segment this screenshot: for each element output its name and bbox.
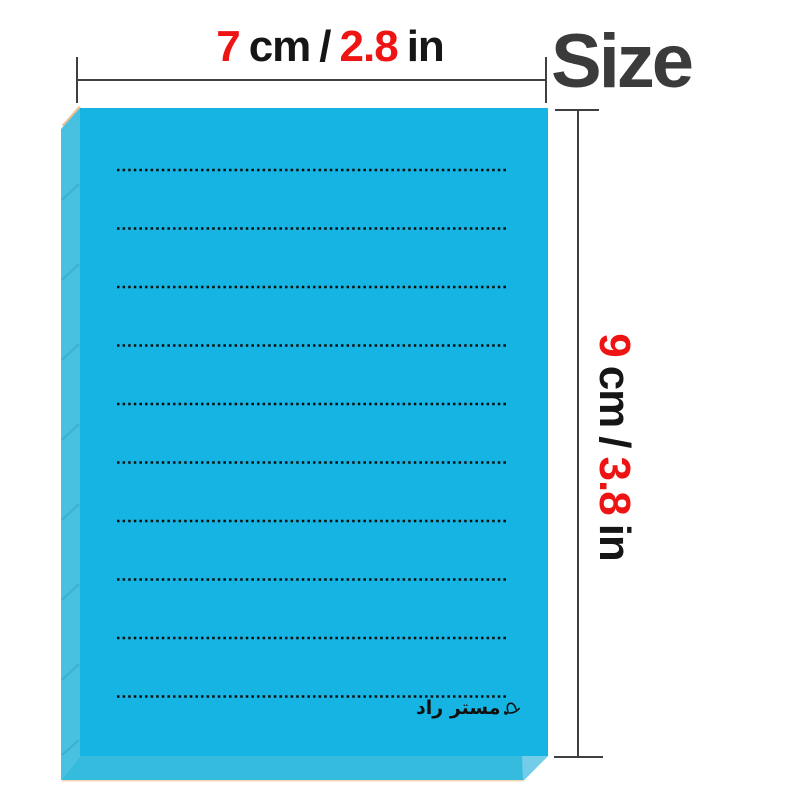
hat-icon (502, 699, 522, 717)
width-separator: / (319, 22, 330, 72)
notepad-corner-bevel (522, 756, 548, 780)
height-imperial-unit: in (589, 524, 639, 561)
notepad-face (80, 108, 548, 756)
brand-logo: مستر راد (416, 697, 522, 719)
notepad-bottom-edge (61, 756, 548, 780)
height-metric-unit: cm (589, 366, 639, 428)
height-imperial-value: 3.8 (589, 457, 639, 515)
height-dimension-label: 9 cm / 3.8 in (589, 333, 639, 561)
diagram-canvas (0, 0, 800, 800)
width-dimension-label: 7 cm / 2.8 in (216, 22, 444, 72)
width-metric-unit: cm (249, 22, 311, 72)
product-size-diagram: 7 cm / 2.8 in Size 9 cm / 3.8 in مستر را… (0, 0, 800, 800)
width-imperial-unit: in (407, 22, 444, 72)
width-imperial-value: 2.8 (340, 22, 398, 72)
size-title: Size (551, 24, 691, 100)
brand-name: مستر راد (416, 697, 501, 719)
height-metric-value: 9 (589, 333, 639, 356)
height-separator: / (589, 436, 639, 447)
width-metric-value: 7 (216, 22, 239, 72)
